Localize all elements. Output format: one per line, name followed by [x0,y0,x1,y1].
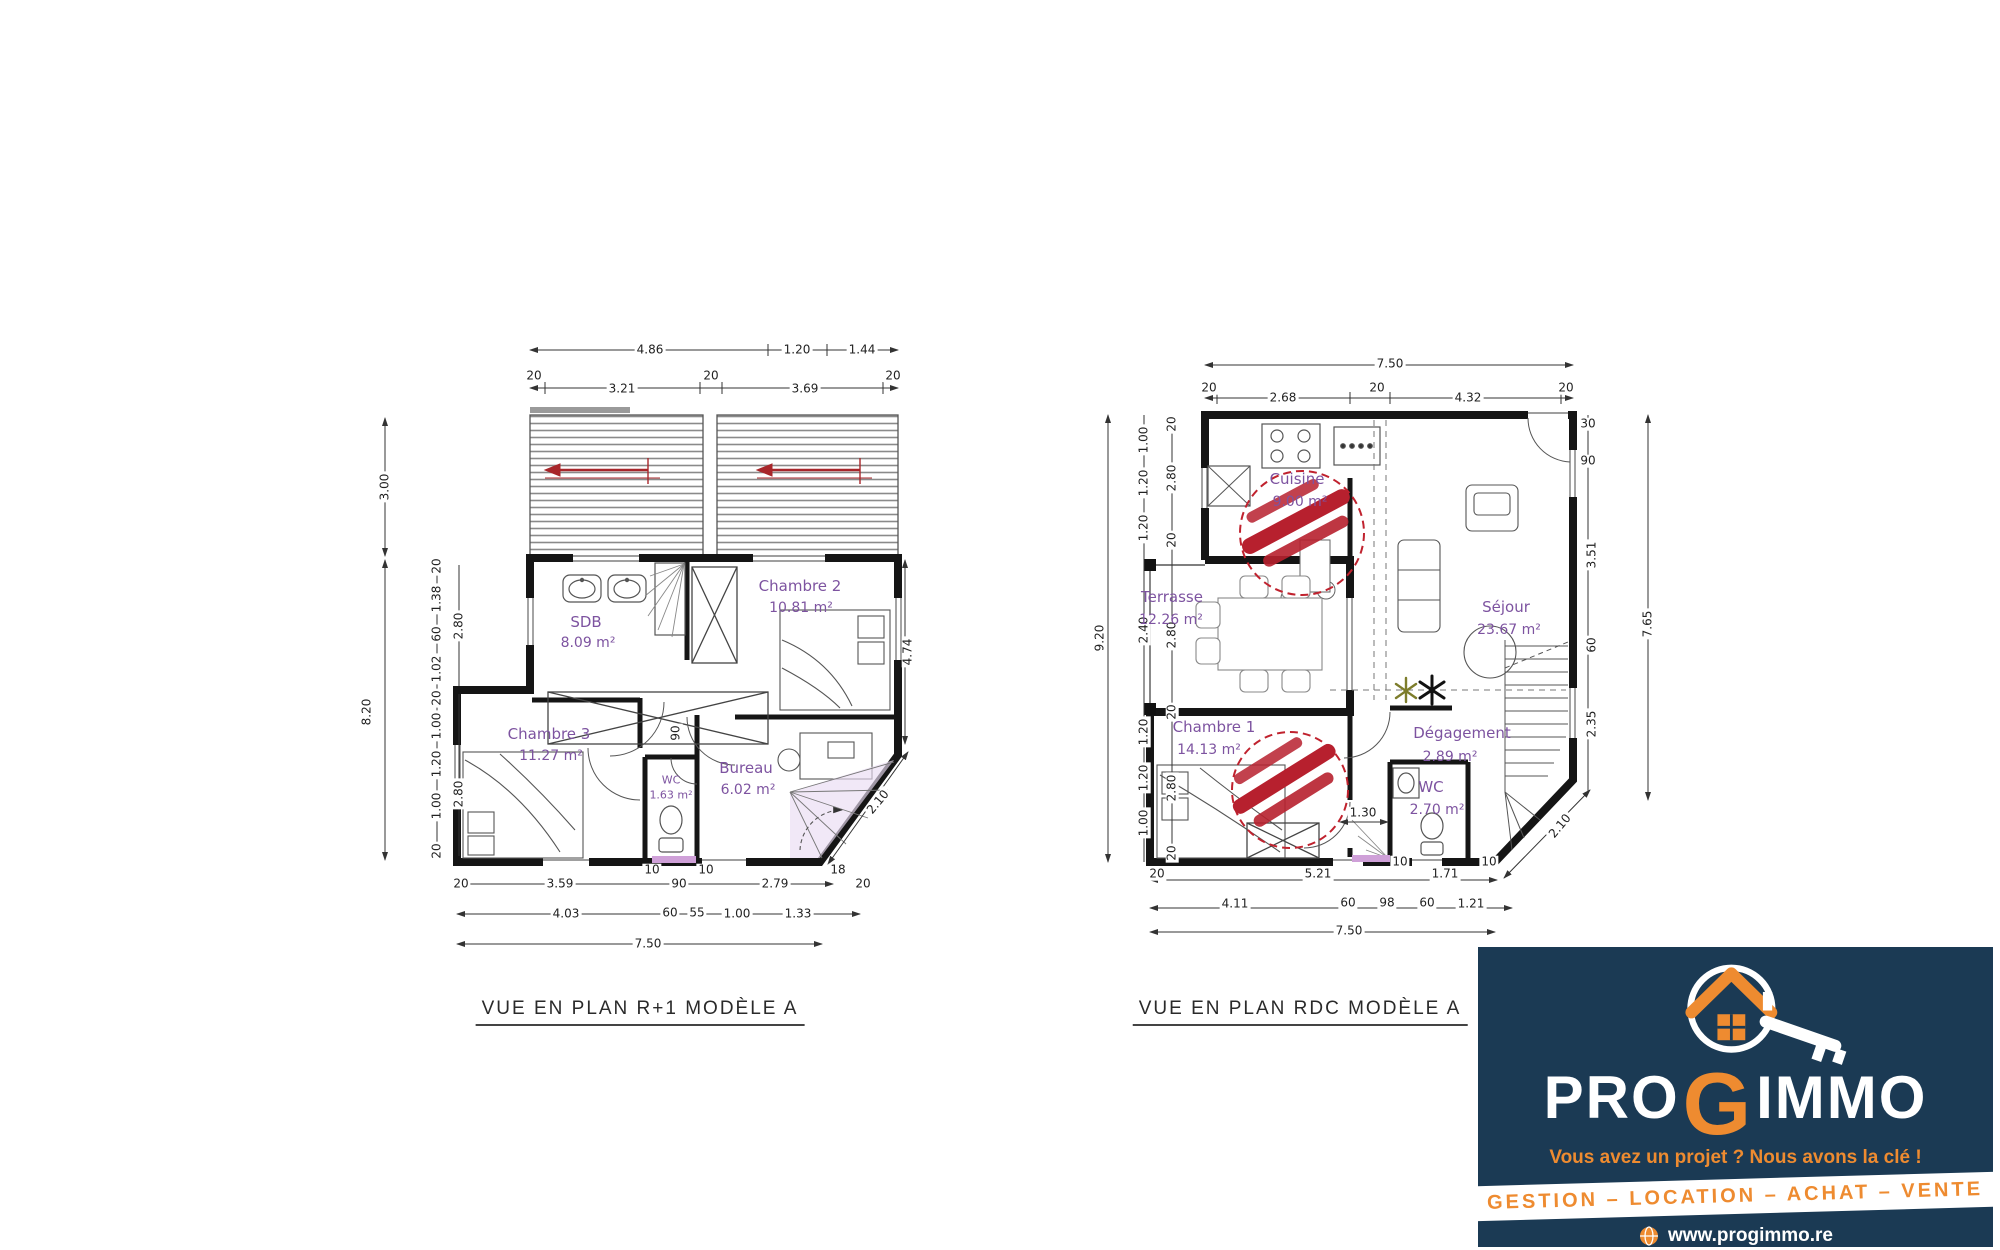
dim-label: 60 [1417,897,1436,910]
brand-g: G [1683,1067,1753,1142]
dim-label: 4.03 [551,908,582,921]
dim-label: 1.00 [1138,425,1151,456]
dim-label: 1.20 [1138,468,1151,499]
dim-label: 1.00 [431,711,444,742]
dim-label: 2.35 [1586,709,1599,740]
dim-label: 1.44 [847,344,878,357]
dim-label: 8.20 [361,697,374,728]
left-plan-title: VUE EN PLAN R+1 MODÈLE A [476,998,805,1026]
dim-label: 1.33 [783,908,814,921]
dim-label: 55 [687,907,706,920]
brand-immo: IMMO [1756,1072,1927,1123]
dim-label: 2.80 [1166,773,1179,804]
room-label-chambre2: Chambre 2 [759,577,842,595]
room-label-chambre3: Chambre 3 [508,725,591,743]
brand-wordmark: PROGIMMO [1544,1060,1928,1135]
progimmo-logo: PROGIMMO Vous avez un projet ? Nous avon… [1478,947,1993,1247]
dim-label: 20 [1367,382,1386,395]
room-area-degagement: 2.89 m² [1423,749,1478,765]
floorplan-sheet: 4.86 1.20 1.44 20 3.21 20 3.69 20 3.00 8… [0,0,2000,1250]
dim-label: 60 [431,624,444,643]
dim-label: 3.21 [607,383,638,396]
dim-label: 20 [1166,843,1179,862]
room-area-chambre2: 10.81 m² [769,600,833,616]
dim-label: 3.51 [1586,540,1599,571]
dim-label: 1.20 [782,344,813,357]
dim-label: 2.80 [453,779,466,810]
room-label-wc-rdc: WC [1418,778,1443,796]
dim-label: 10 [1479,856,1498,869]
dim-label: 1.38 [431,584,444,615]
dim-label: 10 [642,864,661,877]
dim-label: 1.00 [1138,808,1151,839]
dim-label: 3.69 [790,383,821,396]
dim-label: 1.00 [431,791,444,822]
room-label-sejour: Séjour [1482,598,1530,616]
dim-label: 20 [883,370,902,383]
room-label-chambre1: Chambre 1 [1173,718,1256,736]
room-area-wc: 1.63 m² [649,789,692,802]
room-area-chambre3: 11.27 m² [519,748,583,764]
dim-label: 4.86 [635,344,666,357]
room-label-wc: WC [662,774,681,787]
logo-services-banner: GESTION – LOCATION – ACHAT – VENTE [1473,1172,1998,1222]
room-area-wc-rdc: 2.70 m² [1410,802,1465,818]
room-label-terrasse: Terrasse [1141,588,1203,606]
dim-label: 20 [1166,414,1179,433]
dim-label: 20 [431,688,444,707]
dim-label: 1.20 [1138,513,1151,544]
dim-label: 1.21 [1456,898,1487,911]
website-url: www.progimmo.re [1668,1225,1833,1247]
logo-website: www.progimmo.re [1638,1225,1833,1247]
room-label-cuisine: Cuisine [1270,470,1325,488]
dim-label: 2.80 [1166,463,1179,494]
dim-label: 10 [1390,856,1409,869]
dim-label: 98 [1377,897,1396,910]
dim-label: 90 [670,723,683,742]
dim-label: 1.20 [1138,717,1151,748]
room-area-bureau: 6.02 m² [721,782,776,798]
dim-label: 20 [451,878,470,891]
dim-label: 1.00 [722,908,753,921]
room-label-bureau: Bureau [719,759,773,777]
dim-label: 7.50 [1334,925,1365,938]
dim-label: 60 [660,907,679,920]
dim-label: 4.11 [1220,898,1251,911]
dim-label: 20 [853,878,872,891]
dim-label: 4.32 [1453,392,1484,405]
room-area-cuisine: 9.00 m² [1273,494,1328,510]
dim-label: 20 [1556,382,1575,395]
dim-label: 20 [701,370,720,383]
dim-label: 90 [1578,455,1597,468]
dim-label: 1.02 [431,654,444,685]
dim-label: 1.20 [431,749,444,780]
room-area-chambre1: 14.13 m² [1177,742,1241,758]
dim-label: 2.80 [453,611,466,642]
dim-label: 7.50 [1375,358,1406,371]
dim-label: 3.00 [379,472,392,503]
dim-label: 2.79 [760,878,791,891]
dim-label: 4.74 [902,637,915,668]
dim-label: 5.21 [1303,868,1334,881]
dim-label: 20 [1166,530,1179,549]
room-label-degagement: Dégagement [1413,724,1510,742]
dim-label: 90 [669,878,688,891]
dim-label: 18 [828,864,847,877]
dim-label: 60 [1338,897,1357,910]
dim-label: 1.71 [1430,868,1461,881]
dim-label: 7.65 [1642,609,1655,640]
room-area-terrasse: 12.26 m² [1139,612,1203,628]
dim-label: 20 [431,841,444,860]
dim-label: 10 [696,864,715,877]
brand-pro: PRO [1544,1072,1680,1123]
room-area-sejour: 23.67 m² [1477,622,1541,638]
dim-label: 7.50 [633,938,664,951]
dim-label: 1.30 [1348,807,1379,820]
dim-label: 3.59 [545,878,576,891]
dim-label: 20 [524,370,543,383]
dim-label: 20 [431,556,444,575]
dim-label: 2.68 [1268,392,1299,405]
house-key-icon [1596,953,1876,1066]
room-label-sdb: SDB [570,613,601,631]
dim-label: 60 [1586,635,1599,654]
dim-label: 9.20 [1094,623,1107,654]
globe-icon [1638,1225,1660,1247]
dim-label: 20 [1199,382,1218,395]
room-area-sdb: 8.09 m² [561,635,616,651]
dim-label: 20 [1147,868,1166,881]
right-plan-title: VUE EN PLAN RDC MODÈLE A [1133,998,1468,1026]
dim-label: 30 [1578,418,1597,431]
dim-label: 1.20 [1138,763,1151,794]
